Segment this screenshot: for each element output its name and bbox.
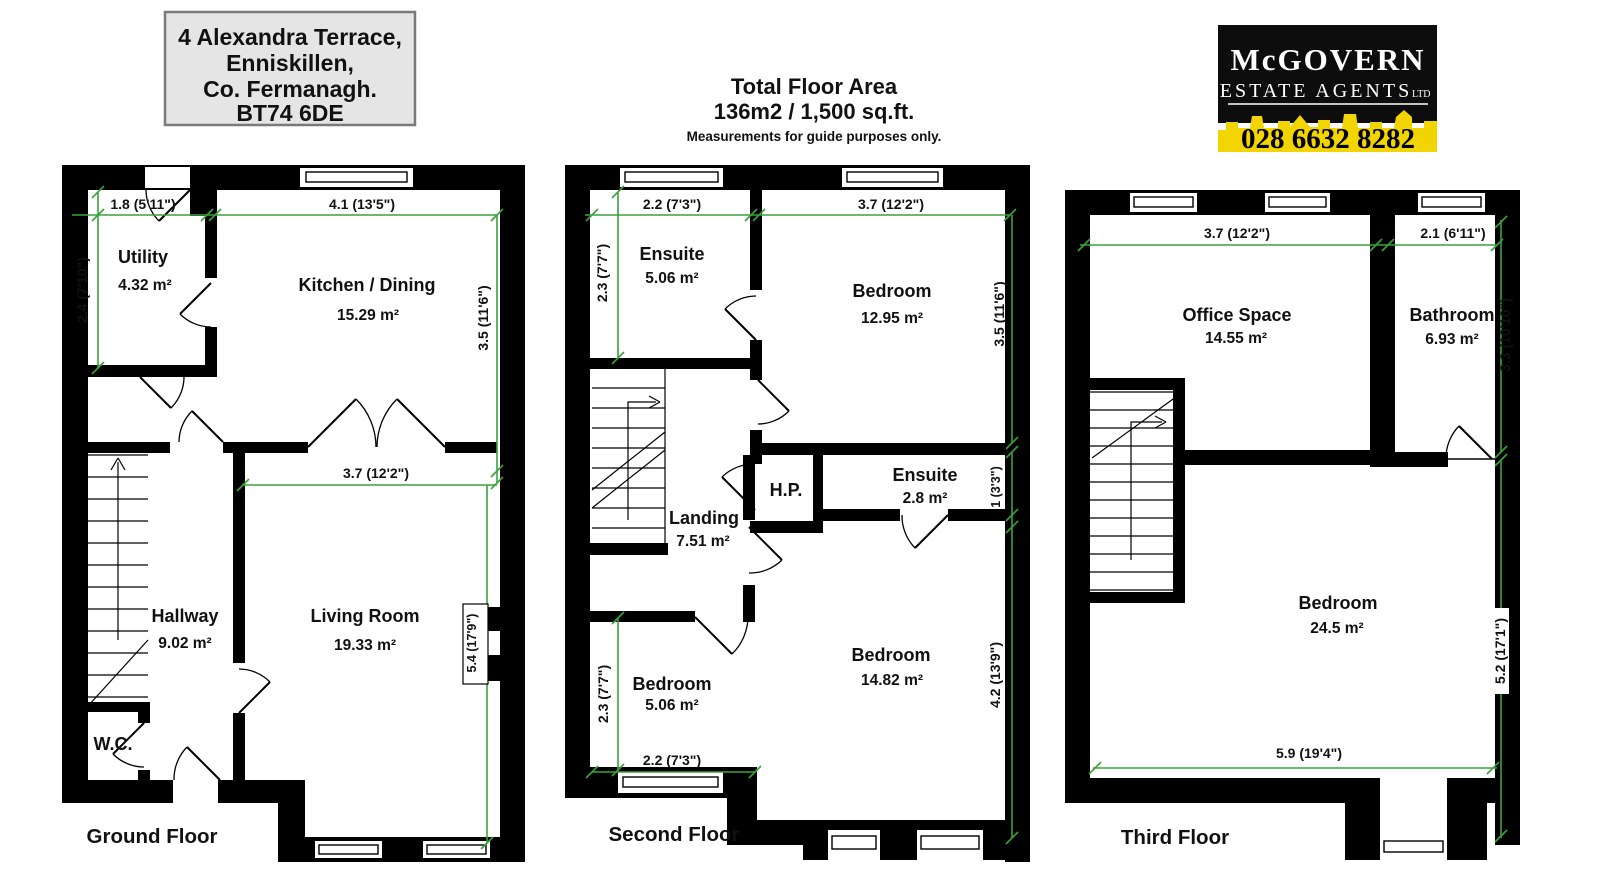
logo-phone: 028 6632 8282 — [1241, 123, 1415, 155]
room-area-bedroom-small: 5.06 m² — [645, 697, 698, 714]
dim-living-width: 3.7 (12'2") — [343, 465, 409, 481]
ground-floor-plan: Utility 4.32 m² Kitchen / Dining 15.29 m… — [62, 165, 525, 862]
dim-ensuite-mid-depth: 1 (3'3") — [989, 466, 1003, 508]
dim-bedroom-front-width: 3.7 (12'2") — [858, 196, 924, 212]
room-label-kitchen-dining: Kitchen / Dining — [299, 275, 436, 295]
dim-bedroom-depth: 5.2 (17'1") — [1492, 618, 1508, 684]
ground-floor-walls — [62, 165, 525, 862]
dim-ensuite-depth: 2.3 (7'7") — [594, 244, 610, 302]
room-area-utility: 4.32 m² — [118, 277, 171, 294]
total-floor-area: Total Floor Area 136m2 / 1,500 sq.ft. Me… — [687, 74, 942, 144]
dim-bathroom-depth: 3.3 (10'10") — [1497, 298, 1513, 372]
dim-bathroom-width: 2.1 (6'11") — [1420, 225, 1485, 241]
second-floor-stairs — [592, 368, 665, 543]
second-floor-plan: Ensuite 5.06 m² Bedroom 12.95 m² Landing… — [565, 165, 1030, 862]
third-floor-doors — [1446, 426, 1492, 459]
room-label-wc: W.C. — [94, 734, 133, 754]
dim-bedroom-front-depth: 3.5 (11'6") — [991, 281, 1007, 346]
room-area-living-room: 19.33 m² — [334, 637, 396, 654]
room-area-hallway: 9.02 m² — [158, 635, 211, 652]
room-label-bedroom-small: Bedroom — [632, 674, 711, 694]
agent-logo: McGOVERN ESTATE AGENTS LTD 028 6632 8282 — [1218, 25, 1437, 155]
logo-name: McGOVERN — [1230, 42, 1425, 77]
room-area-bathroom: 6.93 m² — [1425, 331, 1478, 348]
dim-ensuite-width: 2.2 (7'3") — [643, 196, 701, 212]
dim-utility-depth: 2.4 (7'10") — [74, 257, 90, 323]
total-area-value: 136m2 / 1,500 sq.ft. — [714, 99, 915, 124]
logo-tagline: ESTATE AGENTS — [1220, 80, 1412, 102]
room-label-bedroom-third: Bedroom — [1298, 593, 1377, 613]
ground-floor-labels: Utility 4.32 m² Kitchen / Dining 15.29 m… — [74, 196, 491, 848]
room-area-landing: 7.51 m² — [676, 533, 729, 550]
room-label-bathroom: Bathroom — [1410, 305, 1495, 325]
room-label-utility: Utility — [118, 247, 168, 267]
second-floor-walls — [565, 165, 1030, 862]
room-label-office: Office Space — [1182, 305, 1291, 325]
dim-kitchen-width: 4.1 (13'5") — [329, 196, 395, 212]
dim-bedroom-back-depth: 4.2 (13'9") — [987, 642, 1003, 708]
dim-office-width: 3.7 (12'2") — [1204, 225, 1270, 241]
ground-floor-windows — [145, 167, 490, 858]
room-area-ensuite-mid: 2.8 m² — [903, 490, 948, 507]
third-floor-stairs — [1090, 392, 1180, 590]
ground-floor-stairs — [88, 455, 148, 706]
room-area-bedroom-front: 12.95 m² — [861, 310, 923, 327]
room-area-ensuite-front: 5.06 m² — [645, 270, 698, 287]
room-label-hallway: Hallway — [151, 606, 218, 626]
room-label-bedroom-back: Bedroom — [851, 645, 930, 665]
room-label-ensuite-front: Ensuite — [639, 244, 704, 264]
room-area-bedroom-back: 14.82 m² — [861, 672, 923, 689]
dim-bedroom-width: 5.9 (19'4") — [1276, 745, 1342, 761]
room-label-bedroom-front: Bedroom — [852, 281, 931, 301]
address-box: 4 Alexandra Terrace, Enniskillen, Co. Fe… — [165, 12, 415, 126]
dim-bedroom-small-depth: 2.3 (7'7") — [595, 665, 611, 723]
floorplan-drawing: 4 Alexandra Terrace, Enniskillen, Co. Fe… — [0, 0, 1600, 889]
dim-bedroom-small-width: 2.2 (7'3") — [643, 752, 701, 768]
floor-title-ground: Ground Floor — [87, 825, 218, 848]
room-label-landing: Landing — [669, 508, 739, 528]
address-line-1: 4 Alexandra Terrace, — [178, 24, 402, 50]
floor-title-third: Third Floor — [1121, 826, 1229, 849]
floor-title-second: Second Floor — [609, 823, 740, 846]
third-floor-plan: Office Space 14.55 m² Bathroom 6.93 m² B… — [1065, 190, 1520, 860]
room-area-office: 14.55 m² — [1205, 330, 1267, 347]
room-area-bedroom-third: 24.5 m² — [1310, 620, 1363, 637]
address-line-3: Co. Fermanagh. — [203, 76, 377, 102]
total-area-title: Total Floor Area — [731, 74, 898, 99]
floorplan-page: 4 Alexandra Terrace, Enniskillen, Co. Fe… — [0, 0, 1600, 889]
room-label-hotpress: H.P. — [770, 480, 803, 500]
room-label-ensuite-mid: Ensuite — [892, 465, 957, 485]
address-line-2: Enniskillen, — [226, 50, 354, 76]
dim-utility-width: 1.8 (5'11") — [110, 196, 175, 212]
room-label-living-room: Living Room — [311, 606, 420, 626]
room-area-kitchen-dining: 15.29 m² — [337, 307, 399, 324]
logo-suffix: LTD — [1412, 89, 1431, 100]
dim-kitchen-depth: 3.5 (11'6") — [475, 285, 491, 350]
address-line-4: BT74 6DE — [236, 100, 343, 126]
measurements-note: Measurements for guide purposes only. — [687, 129, 942, 144]
dim-living-depth: 5.4 (17'9") — [465, 614, 479, 673]
